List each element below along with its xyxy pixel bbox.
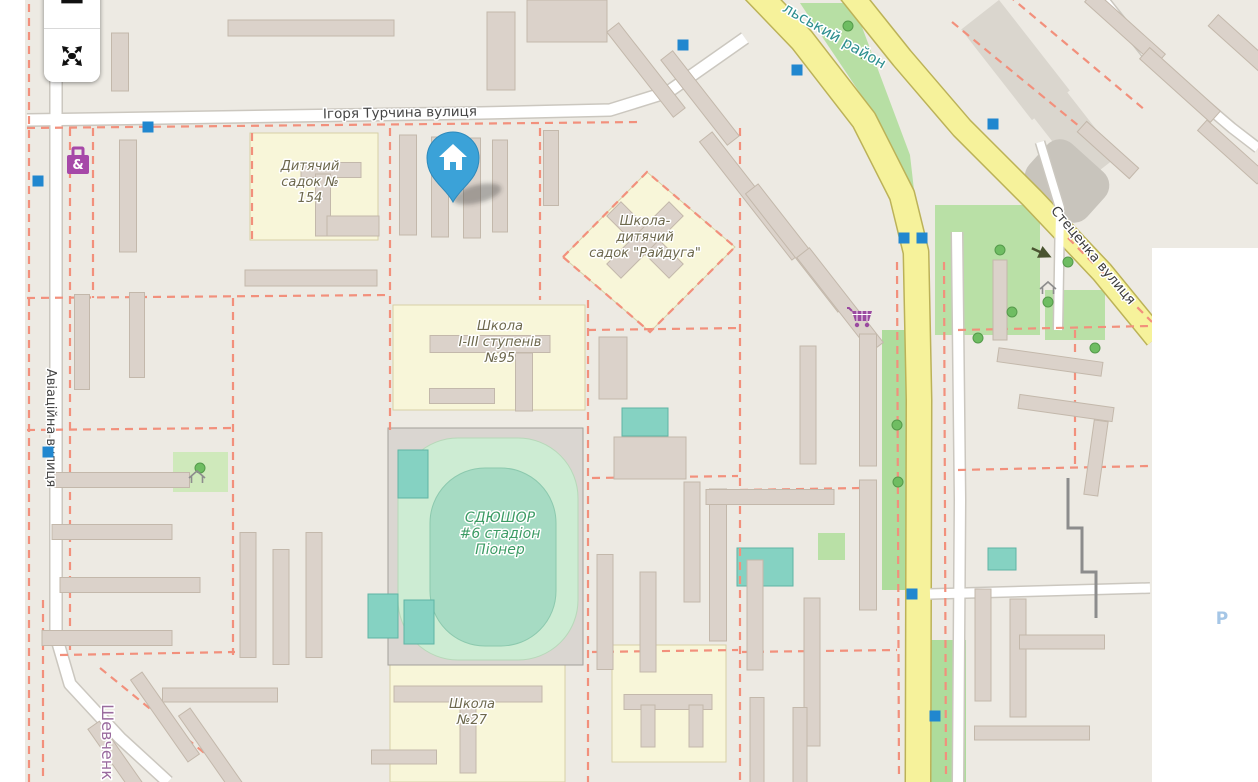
empty-tile — [0, 0, 25, 782]
stop-marker[interactable] — [678, 40, 689, 51]
building — [689, 705, 703, 747]
building — [245, 270, 377, 286]
road — [930, 588, 1150, 594]
building — [228, 20, 394, 36]
building — [400, 135, 417, 235]
tree-icon — [893, 477, 903, 487]
building — [1020, 635, 1105, 649]
building — [860, 480, 877, 610]
map-area — [737, 548, 793, 586]
building — [597, 555, 613, 670]
building — [516, 353, 533, 411]
building — [527, 0, 607, 42]
building — [614, 437, 686, 479]
tree-icon — [1043, 297, 1053, 307]
map-area — [622, 408, 668, 436]
building — [372, 750, 437, 764]
building — [327, 216, 379, 236]
building — [793, 708, 807, 782]
district-label: Шевченк — [98, 704, 117, 780]
building — [52, 525, 172, 540]
building — [112, 33, 129, 91]
building — [641, 705, 655, 747]
empty-tile — [1152, 248, 1258, 782]
home-icon-door — [450, 162, 456, 170]
stop-marker[interactable] — [899, 233, 910, 244]
building — [993, 260, 1007, 340]
map-area — [368, 594, 398, 638]
stop-marker[interactable] — [43, 447, 54, 458]
building — [120, 140, 137, 252]
map-area — [935, 205, 1040, 335]
parking-label: P — [1216, 609, 1228, 629]
fullscreen-icon — [59, 43, 85, 69]
stop-marker[interactable] — [792, 65, 803, 76]
map-canvas[interactable]: &Ігоря Турчина вулицяАвіаційна вулицяСте… — [0, 0, 1258, 782]
building — [544, 131, 559, 206]
building — [163, 688, 278, 702]
map-area — [818, 533, 845, 560]
building — [706, 490, 834, 505]
building — [800, 346, 816, 464]
map-area — [988, 548, 1016, 570]
map-viewport: &Ігоря Турчина вулицяАвіаційна вулицяСте… — [0, 0, 1258, 782]
street-label: Авіаційна вулиця — [43, 369, 58, 487]
fullscreen-button[interactable] — [44, 28, 100, 82]
tree-icon — [892, 420, 902, 430]
building — [684, 482, 700, 602]
stop-marker[interactable] — [907, 589, 918, 600]
map-zoom-controls: − — [44, 0, 100, 82]
building — [1010, 599, 1026, 717]
stop-marker[interactable] — [988, 119, 999, 130]
tree-icon — [843, 21, 853, 31]
building — [750, 698, 764, 782]
building — [75, 295, 90, 390]
building — [60, 578, 200, 593]
tree-icon — [1090, 343, 1100, 353]
tree-icon — [1007, 307, 1017, 317]
building — [710, 489, 727, 641]
building — [130, 293, 145, 378]
building — [975, 589, 991, 701]
map-area — [404, 600, 434, 644]
building — [240, 533, 256, 658]
building — [487, 12, 515, 90]
building — [860, 334, 877, 466]
building — [306, 533, 322, 658]
svg-text:&: & — [72, 158, 83, 173]
building — [42, 631, 172, 646]
building — [599, 337, 627, 399]
building — [747, 560, 763, 670]
zoom-out-button[interactable]: − — [44, 0, 100, 28]
tree-icon — [995, 245, 1005, 255]
building — [975, 726, 1090, 740]
road — [957, 232, 960, 782]
street-label: Ігоря Турчина вулиця — [323, 104, 477, 123]
stop-marker[interactable] — [143, 122, 154, 133]
map-area — [398, 450, 428, 498]
tree-icon — [973, 333, 983, 343]
tree-icon — [1063, 257, 1073, 267]
stop-marker[interactable] — [33, 176, 44, 187]
map-area — [882, 330, 908, 590]
stop-marker[interactable] — [930, 711, 941, 722]
building — [55, 473, 190, 488]
building — [640, 572, 656, 672]
stop-marker[interactable] — [917, 233, 928, 244]
building — [273, 550, 289, 665]
building — [430, 389, 495, 404]
